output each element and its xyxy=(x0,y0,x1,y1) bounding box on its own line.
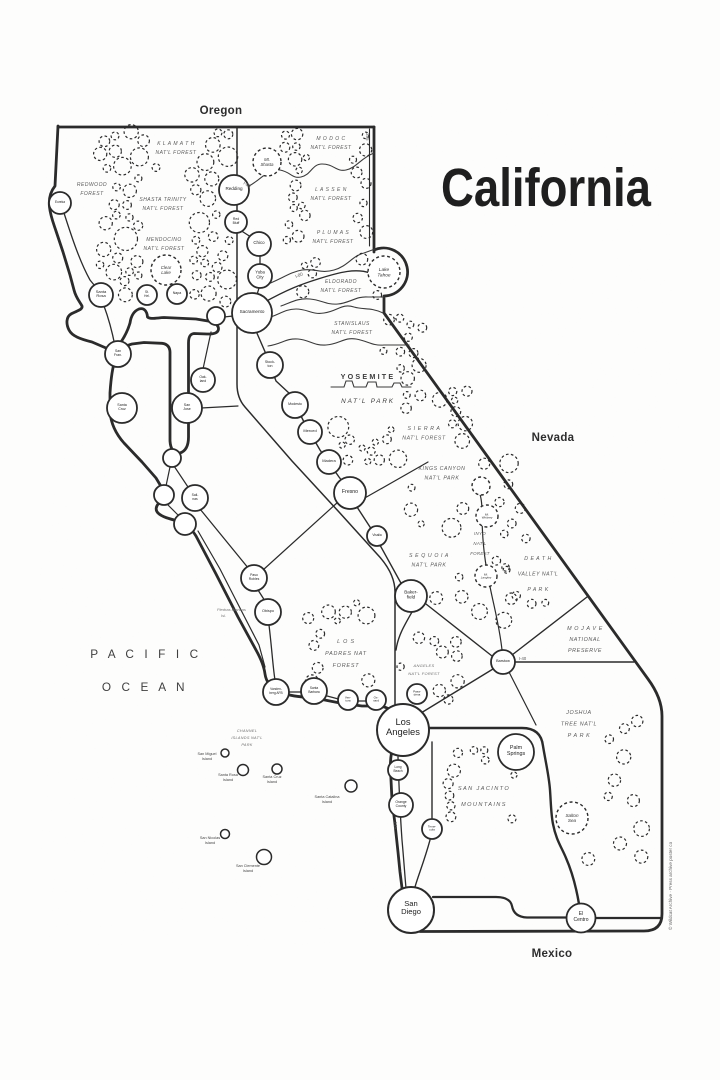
svg-text:TREE NAT'L: TREE NAT'L xyxy=(561,722,597,728)
svg-text:S E Q U O I A: S E Q U O I A xyxy=(409,553,449,559)
svg-text:Bluff: Bluff xyxy=(233,221,240,225)
svg-text:K L A M A T H: K L A M A T H xyxy=(157,141,195,147)
svg-text:Barbara: Barbara xyxy=(308,690,320,694)
svg-text:Hel.: Hel. xyxy=(144,294,150,298)
svg-text:VALLEY NAT'L: VALLEY NAT'L xyxy=(518,572,559,578)
svg-text:M O D O C: M O D O C xyxy=(316,136,345,142)
svg-text:P A C I F I C: P A C I F I C xyxy=(90,647,202,661)
svg-text:County: County xyxy=(396,804,407,808)
svg-text:MOUNTAINS: MOUNTAINS xyxy=(461,802,507,808)
svg-text:nard: nard xyxy=(373,699,379,703)
svg-text:City: City xyxy=(256,274,264,279)
svg-text:Island: Island xyxy=(223,778,233,782)
svg-text:Shasta: Shasta xyxy=(260,162,274,167)
svg-text:Island: Island xyxy=(205,841,215,845)
svg-text:Island: Island xyxy=(202,757,212,761)
svg-text:Nevada: Nevada xyxy=(532,432,575,444)
svg-text:Los: Los xyxy=(395,716,410,727)
svg-text:CHANNEL: CHANNEL xyxy=(237,729,257,733)
svg-text:Fran.: Fran. xyxy=(114,353,122,357)
svg-text:Lake: Lake xyxy=(379,267,390,273)
svg-text:San Nicolas: San Nicolas xyxy=(200,836,220,840)
svg-text:FOREST: FOREST xyxy=(333,663,360,669)
svg-text:YOSEMITE: YOSEMITE xyxy=(341,372,396,381)
svg-text:Mexico: Mexico xyxy=(532,948,573,960)
svg-text:S I E R R A: S I E R R A xyxy=(408,426,441,432)
svg-text:Island: Island xyxy=(322,800,332,804)
svg-text:Centro: Centro xyxy=(573,917,588,923)
svg-text:O C E A N: O C E A N xyxy=(102,680,188,694)
svg-text:California: California xyxy=(441,158,652,218)
svg-text:Merced: Merced xyxy=(303,428,316,433)
svg-text:ANGELES: ANGELES xyxy=(413,663,435,668)
svg-text:San Miguel: San Miguel xyxy=(198,752,217,756)
svg-text:395: 395 xyxy=(365,133,370,141)
svg-text:Eureka: Eureka xyxy=(55,200,65,204)
svg-text:NAT'L FOREST: NAT'L FOREST xyxy=(311,145,352,151)
svg-text:© Wildcat Archive · Press arch: © Wildcat Archive · Press archive poster… xyxy=(667,841,673,930)
svg-text:P A R K: P A R K xyxy=(568,733,591,739)
svg-text:Modesto: Modesto xyxy=(288,402,302,406)
svg-text:NAT'L PARK: NAT'L PARK xyxy=(341,398,395,405)
svg-text:Cruz: Cruz xyxy=(118,407,126,411)
svg-text:FOREST: FOREST xyxy=(470,551,490,556)
svg-text:land: land xyxy=(200,379,207,383)
svg-text:Rosa: Rosa xyxy=(96,293,106,298)
svg-text:KINGS CANYON: KINGS CANYON xyxy=(419,466,466,472)
svg-text:ELDORADO: ELDORADO xyxy=(325,279,357,285)
svg-text:Madera: Madera xyxy=(322,458,336,463)
svg-text:PARK: PARK xyxy=(241,743,252,747)
svg-text:PADRES NAT: PADRES NAT xyxy=(325,651,367,657)
svg-text:STANISLAUS: STANISLAUS xyxy=(334,321,370,327)
svg-text:Oregon: Oregon xyxy=(200,105,243,117)
svg-text:JOSHUA: JOSHUA xyxy=(565,710,591,716)
svg-text:SAN JACINTO: SAN JACINTO xyxy=(458,786,510,792)
svg-text:L O S: L O S xyxy=(337,639,355,645)
svg-text:P L U M A S: P L U M A S xyxy=(317,230,350,236)
svg-text:Fresno: Fresno xyxy=(342,489,358,495)
svg-text:Sea: Sea xyxy=(568,818,577,823)
svg-text:Springs: Springs xyxy=(507,751,526,757)
svg-text:MENDOCINO: MENDOCINO xyxy=(146,237,182,243)
svg-text:Obispo: Obispo xyxy=(262,609,274,613)
svg-text:Santa Cruz: Santa Cruz xyxy=(263,775,282,779)
svg-text:P A R K: P A R K xyxy=(527,587,548,593)
svg-text:D E A T H: D E A T H xyxy=(524,556,551,562)
svg-text:M O J A V E: M O J A V E xyxy=(567,626,603,632)
svg-text:Lake: Lake xyxy=(161,270,171,275)
svg-text:NAT'L PARK: NAT'L PARK xyxy=(412,562,447,568)
svg-text:Redding: Redding xyxy=(225,186,243,191)
svg-text:Whitney: Whitney xyxy=(482,516,493,520)
svg-text:Santa Rosa: Santa Rosa xyxy=(218,773,239,777)
svg-text:NAT'L FOREST: NAT'L FOREST xyxy=(143,206,184,212)
svg-text:FOREST: FOREST xyxy=(80,191,104,197)
svg-text:Beach: Beach xyxy=(393,769,402,773)
svg-text:NAT'L: NAT'L xyxy=(473,541,486,546)
svg-text:NAT'L FOREST: NAT'L FOREST xyxy=(313,239,354,245)
svg-text:Napa: Napa xyxy=(173,291,182,295)
svg-text:PRESERVE: PRESERVE xyxy=(568,648,602,654)
svg-text:I-40: I-40 xyxy=(519,656,527,661)
svg-text:Island: Island xyxy=(267,780,277,784)
svg-text:berg AFB: berg AFB xyxy=(269,691,282,695)
svg-text:Robles: Robles xyxy=(249,577,260,581)
svg-text:NAT'L FOREST: NAT'L FOREST xyxy=(321,288,362,294)
svg-text:NATIONAL: NATIONAL xyxy=(569,637,600,643)
svg-text:cula: cula xyxy=(429,828,435,832)
svg-text:Jose: Jose xyxy=(183,407,191,411)
svg-text:Visalia: Visalia xyxy=(372,533,382,537)
svg-text:NAT'L PARK: NAT'L PARK xyxy=(425,475,460,481)
svg-text:NAT'L FOREST: NAT'L FOREST xyxy=(156,150,197,156)
svg-text:nas: nas xyxy=(192,497,198,501)
svg-text:NAT'L FOREST: NAT'L FOREST xyxy=(408,671,440,676)
svg-text:Isl.: Isl. xyxy=(221,613,226,618)
svg-text:NAT'L FOREST: NAT'L FOREST xyxy=(311,196,352,202)
svg-text:L A S S E N: L A S S E N xyxy=(315,187,347,193)
svg-text:SHASTA TRINITY: SHASTA TRINITY xyxy=(139,197,186,203)
svg-text:Sacramento: Sacramento xyxy=(240,309,265,314)
svg-text:NAT'L FOREST: NAT'L FOREST xyxy=(144,246,185,252)
svg-text:ton: ton xyxy=(268,364,273,368)
svg-text:NAT'L FOREST: NAT'L FOREST xyxy=(402,435,446,441)
svg-text:I-15: I-15 xyxy=(393,822,398,830)
svg-text:Diego: Diego xyxy=(401,907,421,916)
svg-text:Island: Island xyxy=(243,869,253,873)
svg-text:field: field xyxy=(407,595,416,600)
svg-text:Tahoe: Tahoe xyxy=(377,272,390,278)
svg-text:Santa Catalina: Santa Catalina xyxy=(315,795,341,799)
svg-text:ISLANDS NAT'L: ISLANDS NAT'L xyxy=(231,736,262,740)
svg-text:Angeles: Angeles xyxy=(386,726,420,737)
svg-text:dena: dena xyxy=(414,693,421,697)
svg-text:NAT'L FOREST: NAT'L FOREST xyxy=(332,330,373,336)
svg-text:tura: tura xyxy=(345,699,351,703)
svg-text:INYO: INYO xyxy=(474,531,486,536)
svg-text:Piedras Blancas: Piedras Blancas xyxy=(217,607,246,612)
svg-text:REDWOOD: REDWOOD xyxy=(77,182,107,188)
svg-text:San Clemente: San Clemente xyxy=(236,864,260,868)
svg-text:Barstow: Barstow xyxy=(496,659,510,663)
svg-text:Chico: Chico xyxy=(253,240,265,245)
svg-text:Langley: Langley xyxy=(481,576,492,580)
